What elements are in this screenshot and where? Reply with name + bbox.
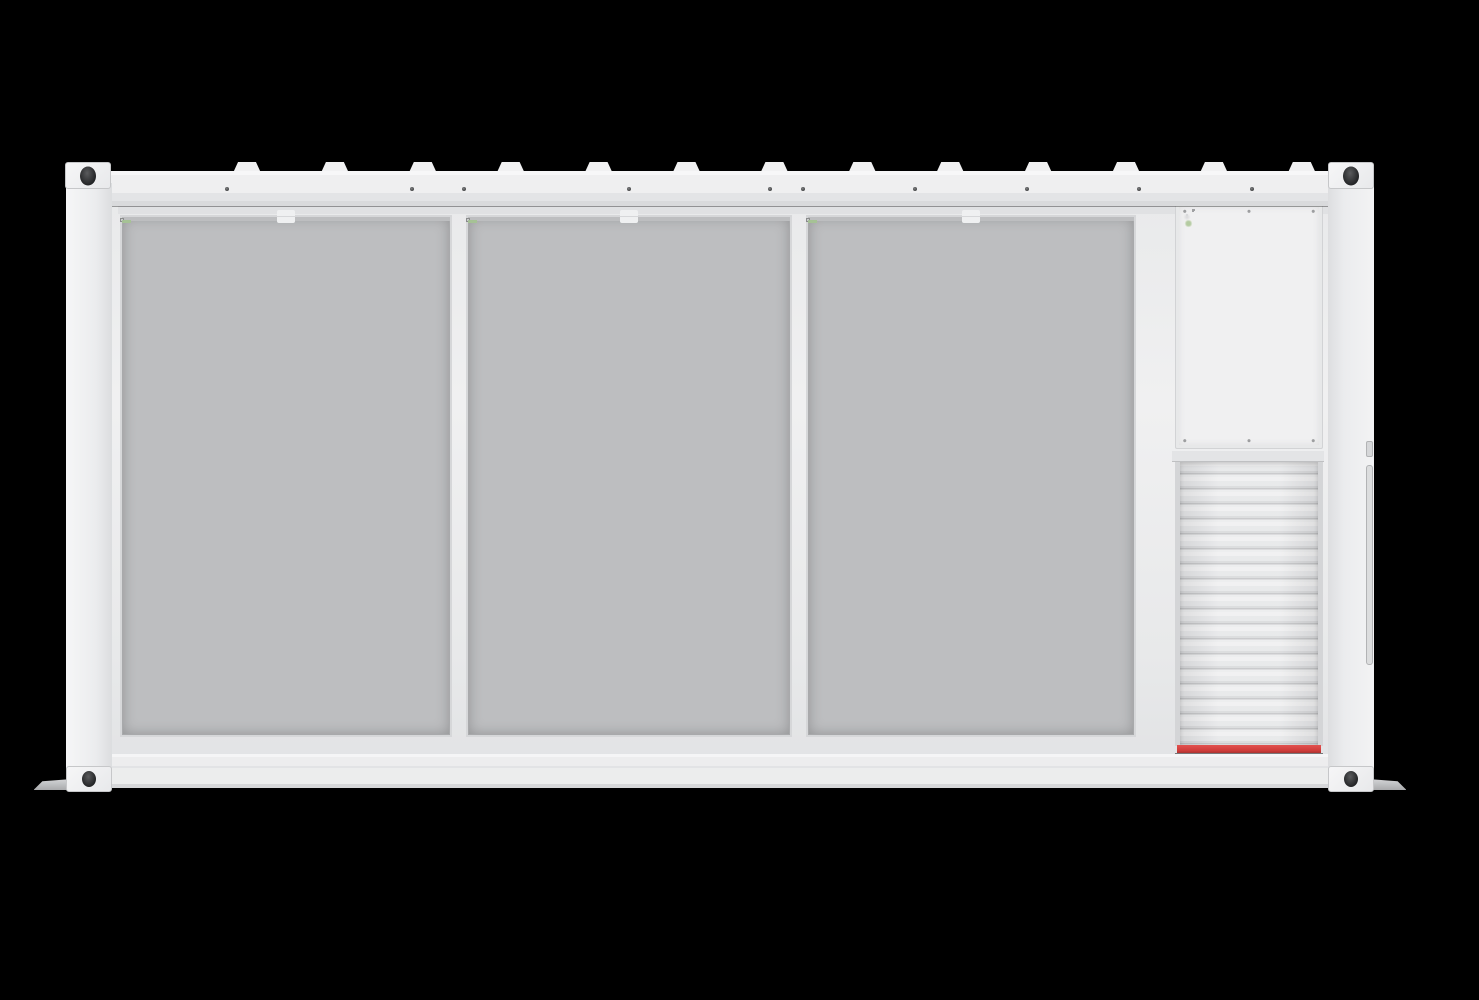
casting-hole bbox=[1344, 771, 1358, 787]
rail-bolt bbox=[913, 187, 917, 191]
rail-bolt bbox=[462, 187, 466, 191]
battery-bay bbox=[466, 215, 792, 737]
shelf-latch-tab bbox=[620, 210, 638, 216]
bay-latch-tab bbox=[962, 217, 980, 223]
rail-bolt bbox=[768, 187, 772, 191]
corner-casting-top-left bbox=[65, 162, 111, 189]
bottom-rail bbox=[106, 754, 1374, 788]
rail-bolt bbox=[801, 187, 805, 191]
rail-bolt bbox=[627, 187, 631, 191]
shelf-latch-tab bbox=[962, 210, 980, 216]
shelf-latch-tab bbox=[277, 210, 295, 216]
battery-bay bbox=[120, 215, 452, 737]
rail-bolt bbox=[1137, 187, 1141, 191]
louver-slats bbox=[1175, 462, 1323, 746]
converter-unit bbox=[1186, 214, 1188, 216]
red-safety-stripe bbox=[1177, 745, 1321, 753]
corner-post-left bbox=[66, 183, 112, 770]
module-label bbox=[122, 220, 131, 223]
ventilation-mesh bbox=[1192, 209, 1194, 211]
rail-bolt bbox=[1250, 187, 1254, 191]
scene bbox=[0, 0, 1479, 1000]
status-led bbox=[1187, 222, 1190, 225]
rail-bolt bbox=[1025, 187, 1029, 191]
corner-casting-bottom-left bbox=[66, 766, 112, 792]
casting-hole bbox=[80, 166, 96, 185]
casting-hole bbox=[82, 771, 96, 787]
corner-casting-bottom-right bbox=[1328, 766, 1374, 792]
module-label bbox=[808, 220, 817, 223]
casting-hole bbox=[1343, 166, 1359, 185]
corner-casting-top-right bbox=[1328, 162, 1374, 189]
converter-cabinet bbox=[1175, 203, 1323, 449]
bay-latch-tab bbox=[277, 217, 295, 223]
door-hinge-nub bbox=[1366, 441, 1373, 457]
top-rail bbox=[106, 171, 1374, 206]
door-handle-rail bbox=[1366, 465, 1373, 665]
shutter-header bbox=[1172, 451, 1324, 462]
module-label bbox=[468, 220, 477, 223]
battery-bay bbox=[806, 215, 1136, 737]
rail-bolt bbox=[410, 187, 414, 191]
bay-latch-tab bbox=[620, 217, 638, 223]
rail-bolt bbox=[225, 187, 229, 191]
